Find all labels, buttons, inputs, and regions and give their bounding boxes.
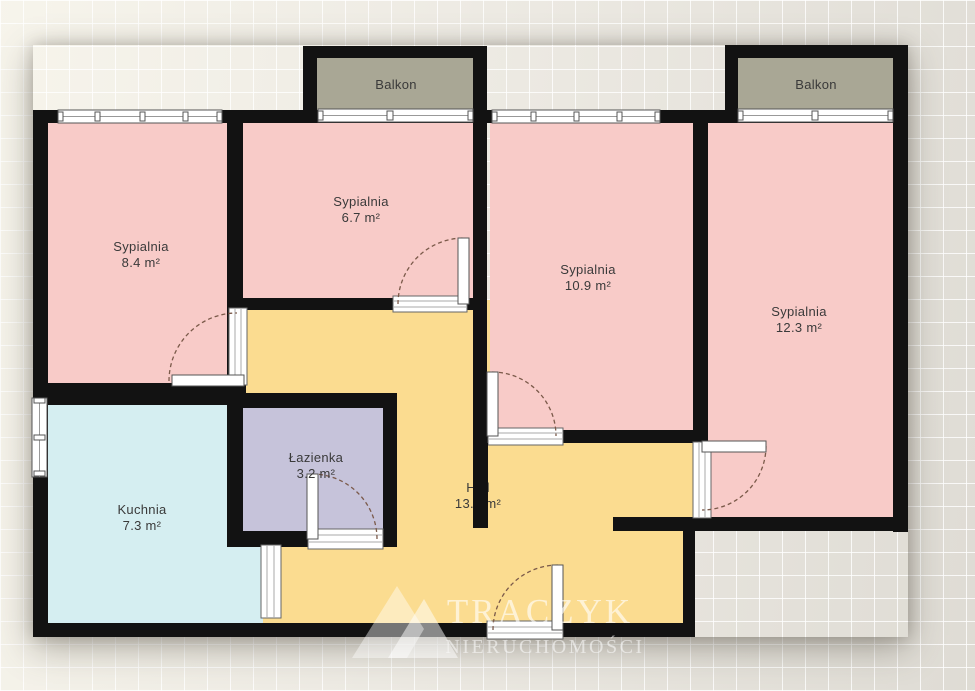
- window: [738, 109, 893, 122]
- room-label-balkon-1: Balkon: [375, 77, 417, 93]
- room-name: Sypialnia: [560, 262, 615, 278]
- window: [318, 109, 473, 122]
- wall-sypialnia4-bottom: [613, 517, 908, 531]
- window: [32, 398, 47, 477]
- door-leaf: [458, 238, 469, 304]
- room-area: 3.2 m²: [289, 466, 343, 482]
- room-area: 12.3 m²: [771, 320, 826, 336]
- wall-right: [893, 45, 908, 532]
- wall-hall-right: [683, 531, 695, 637]
- room-area: 6.7 m²: [333, 210, 388, 226]
- room-name: Sypialnia: [771, 304, 826, 320]
- door-leaf: [702, 441, 766, 452]
- room-area: 8.4 m²: [113, 255, 168, 271]
- door-leaf: [552, 565, 563, 630]
- door-frame: [308, 529, 383, 549]
- wall-balkon1-top: [303, 46, 487, 58]
- room-label-lazienka: Łazienka 3.2 m²: [289, 450, 343, 482]
- door-leaf: [487, 372, 498, 436]
- room-name: Balkon: [375, 77, 417, 93]
- door-frame: [393, 296, 467, 312]
- room-label-sypialnia-2: Sypialnia 6.7 m²: [333, 194, 388, 226]
- window: [492, 110, 660, 123]
- room-name: Łazienka: [289, 450, 343, 466]
- room-name: Sypialnia: [113, 239, 168, 255]
- room-label-sypialnia-4: Sypialnia 12.3 m²: [771, 304, 826, 336]
- wall-stub-overlay: [473, 443, 488, 528]
- door-frame: [488, 428, 563, 445]
- window: [58, 110, 222, 123]
- wall-lazienka-top: [243, 393, 397, 408]
- wall-lazienka-right: [383, 393, 397, 547]
- room-floors: [46, 58, 893, 637]
- door-leaf: [172, 375, 244, 386]
- room-name: Sypialnia: [333, 194, 388, 210]
- room-name: Kuchnia: [117, 502, 166, 518]
- room-area: 10.9 m²: [560, 278, 615, 294]
- room-label-kuchnia: Kuchnia 7.3 m²: [117, 502, 166, 534]
- floorplan-canvas: Sypialnia 8.4 m² Sypialnia 6.7 m² Sypial…: [0, 0, 975, 691]
- floorplan-drawing: [0, 0, 975, 691]
- room-area: 7.3 m²: [117, 518, 166, 534]
- wall-left: [33, 110, 48, 637]
- door-frame: [261, 545, 281, 618]
- room-name: Balkon: [795, 77, 837, 93]
- door-frame: [693, 442, 711, 518]
- door-frame: [229, 308, 247, 385]
- room-label-balkon-2: Balkon: [795, 77, 837, 93]
- room-label-sypialnia-1: Sypialnia 8.4 m²: [113, 239, 168, 271]
- wall-balkon2-top: [725, 45, 908, 58]
- wall-balkon2-left: [725, 45, 738, 112]
- room-label-sypialnia-3: Sypialnia 10.9 m²: [560, 262, 615, 294]
- wall-vertical-right: [693, 110, 708, 443]
- wall-bottom: [33, 623, 695, 637]
- wall-balkon1-left: [303, 46, 317, 110]
- door-leaf: [307, 474, 318, 539]
